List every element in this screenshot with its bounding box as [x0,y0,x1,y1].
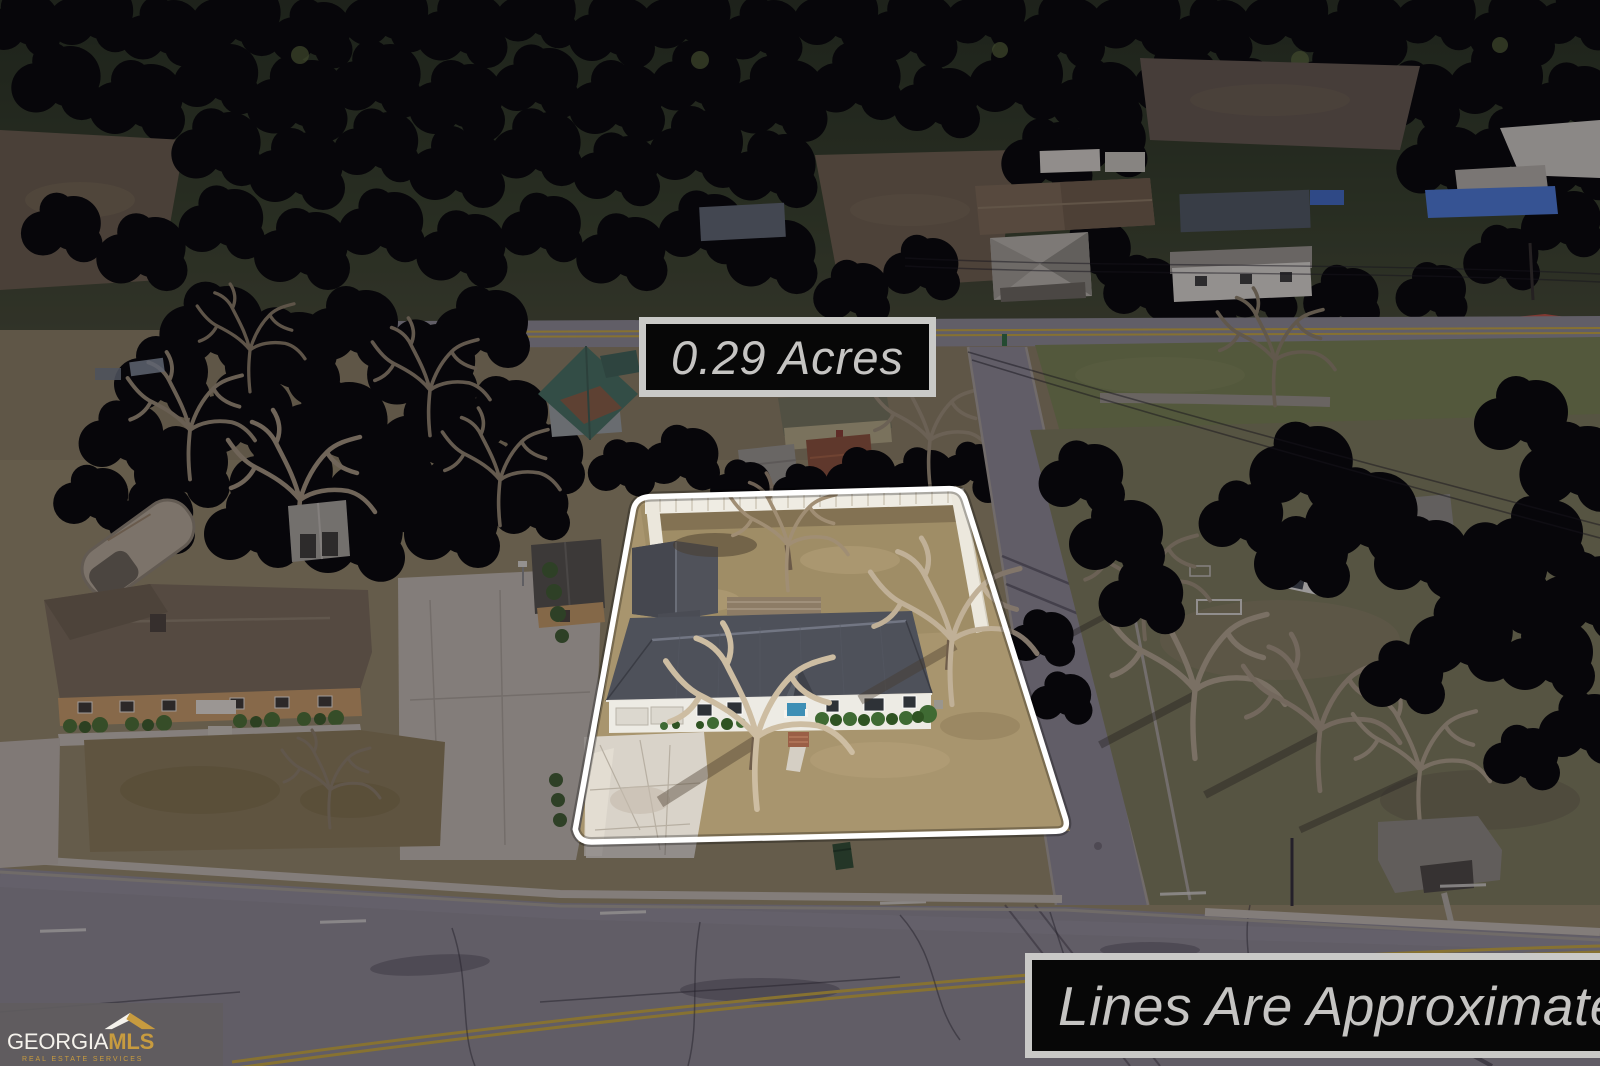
brand-name: GEORGIAMLS [7,1029,154,1055]
disclaimer-label: Lines Are Approximate [1025,953,1600,1058]
brand-logo: GEORGIAMLS REAL ESTATE SERVICES [0,1003,223,1066]
brand-secondary: MLS [108,1029,154,1054]
roof-icon [100,1011,160,1031]
disclaimer-text: Lines Are Approximate [1032,974,1600,1038]
brand-primary: GEORGIA [7,1029,108,1054]
acreage-label: 0.29 Acres [639,317,936,397]
acreage-text: 0.29 Acres [671,330,904,385]
aerial-photo [0,0,1600,1066]
listing-photo: 0.29 Acres Lines Are Approximate GEORGIA… [0,0,1600,1066]
brand-tagline: REAL ESTATE SERVICES [22,1056,143,1063]
